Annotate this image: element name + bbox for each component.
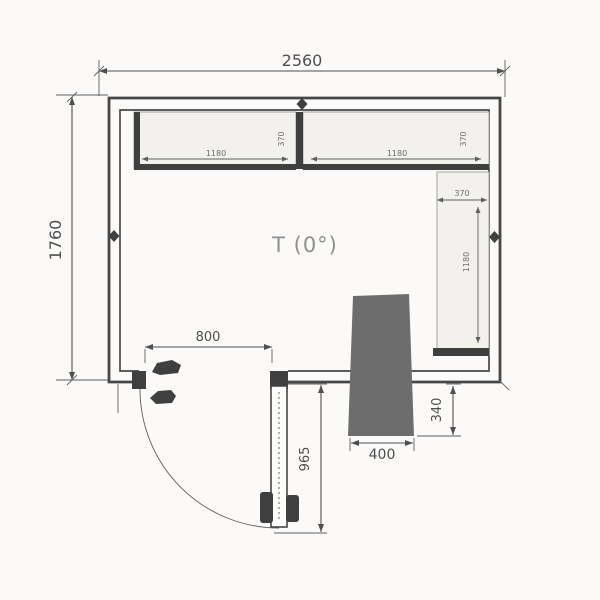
door-handle: [260, 492, 273, 523]
shelf-edge: [134, 112, 140, 169]
shelf-edge: [303, 164, 489, 170]
dim-shelf-right-depth: 370: [459, 131, 468, 146]
dim-side-shelf-depth: 370: [454, 189, 469, 198]
dim-shelf-left-length: 1180: [206, 149, 226, 158]
dim-shelf-right-length: 1180: [387, 149, 407, 158]
shelf-top-left: [134, 112, 296, 169]
shelf-edge: [134, 164, 296, 170]
cooling-unit: [348, 294, 414, 436]
dim-door-width-label: 800: [196, 330, 221, 345]
paper-background: [0, 0, 600, 600]
dim-shelf-left-depth: 370: [277, 131, 286, 146]
shelf-edge: [433, 348, 489, 356]
shelf-divider: [296, 112, 303, 169]
dim-unit-protrusion-label: 340: [430, 398, 445, 423]
room-temperature-label: T (0°): [271, 233, 338, 257]
dim-unit-width-label: 400: [369, 447, 396, 463]
dim-overall-depth-label: 1760: [46, 220, 65, 261]
floor-plan-drawing: 1180 370 1180 370 370 1180 2560: [0, 0, 600, 600]
door-handle-outer: [286, 495, 299, 522]
dim-door-leaf-label: 965: [298, 447, 313, 472]
dim-overall-width-label: 2560: [282, 51, 323, 70]
dim-side-shelf-length: 1180: [462, 252, 471, 272]
door-jamb-left: [132, 371, 146, 389]
floor-plan-page: 1180 370 1180 370 370 1180 2560: [0, 0, 600, 600]
